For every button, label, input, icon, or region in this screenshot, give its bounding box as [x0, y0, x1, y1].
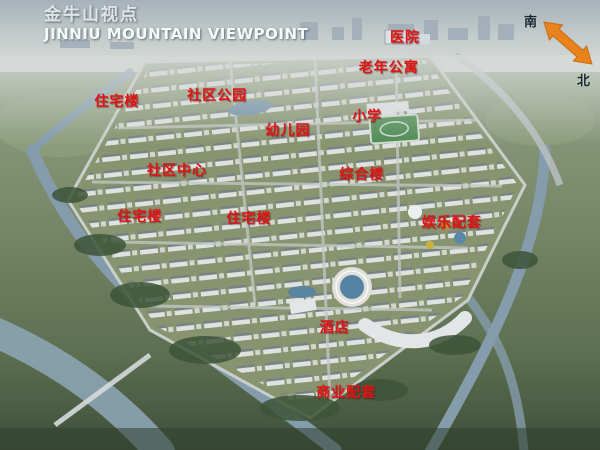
label-entertainment-facilities: 娱乐配套: [422, 212, 482, 232]
label-residential-west: 住宅楼: [117, 206, 162, 226]
label-community-park: 社区公园: [187, 85, 247, 105]
label-hotel: 酒店: [320, 317, 350, 337]
title-chinese: 金牛山视点: [44, 6, 308, 26]
title-english: JINNIU MOUNTAIN VIEWPOINT: [44, 26, 308, 43]
label-senior-apartments: 老年公寓: [359, 57, 419, 77]
label-residential-center: 住宅楼: [227, 208, 272, 228]
label-commercial-facilities: 商业配套: [316, 382, 376, 402]
label-residential-northwest: 住宅楼: [95, 91, 140, 111]
label-hospital: 医院: [390, 27, 420, 47]
screenshot-root: 金牛山视点 JINNIU MOUNTAIN VIEWPOINT 医院 老年公寓 …: [0, 0, 600, 450]
compass-arrow-icon: [535, 12, 600, 72]
pool-plaza: [332, 267, 372, 307]
small-lake: [288, 286, 316, 298]
compass-south-label: 南: [524, 11, 537, 30]
page-title: 金牛山视点 JINNIU MOUNTAIN VIEWPOINT: [44, 6, 308, 43]
label-kindergarten: 幼儿园: [266, 120, 311, 140]
compass-north-label: 北: [577, 70, 590, 89]
label-mixed-use-building: 综合楼: [339, 164, 384, 184]
aerial-rendering: [0, 0, 600, 450]
foreground-shade: [0, 428, 600, 450]
label-primary-school: 小学: [352, 106, 382, 126]
label-community-center: 社区中心: [147, 160, 207, 180]
